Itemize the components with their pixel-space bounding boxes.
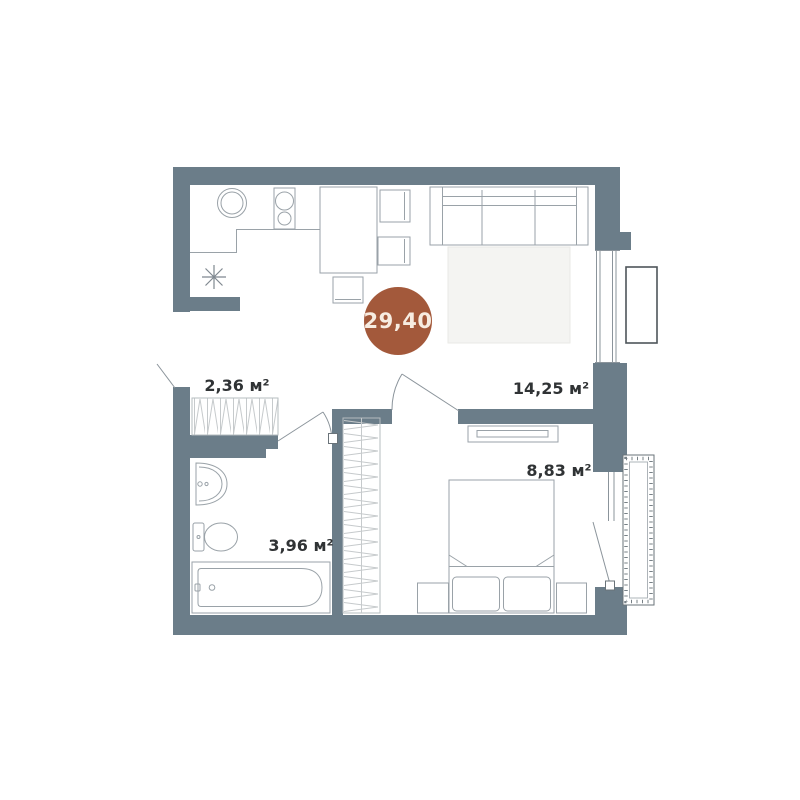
bedroom [343, 418, 587, 613]
bedroom-door-leaf [402, 374, 459, 411]
wall-bottom [173, 615, 627, 635]
sofa-outline [430, 187, 588, 245]
kitchen-sink-icon [218, 189, 247, 218]
balcony [623, 455, 654, 605]
rug [448, 247, 570, 343]
balcony-inner-rail [630, 462, 648, 598]
bathroom-door-pivot [329, 434, 338, 444]
wall-living-bedroom-b [458, 409, 595, 424]
wall-left-lower [173, 387, 190, 635]
wall-top [173, 167, 620, 185]
pillow-left [453, 577, 500, 611]
balcony-door-pivot [606, 581, 615, 590]
wall-bath-hall-b [190, 449, 266, 458]
chair-right-1 [380, 190, 410, 222]
balcony-door-leaf [593, 522, 610, 584]
tv-console [468, 426, 558, 442]
wall-left-upper [173, 167, 190, 312]
wall-right-top [595, 167, 620, 250]
hallway-area-label: 2,36 м² [204, 376, 269, 395]
wall-bath-hall-a [190, 435, 278, 449]
floor-plan-canvas: 2,36 м² 14,25 м² 3,96 м² 8,83 м² 29,40 [0, 0, 800, 800]
kitchen-living-area-label: 14,25 м² [513, 379, 589, 398]
stove-icon [274, 188, 295, 229]
wall-right-top-notch [620, 232, 631, 250]
fridge-star-icon [202, 265, 226, 289]
total-area-badge: 29,40 [364, 287, 433, 355]
hallway-wardrobe-hatch [192, 398, 278, 435]
wall-right-mid-pier [593, 363, 627, 472]
bathroom-door-leaf [278, 412, 323, 441]
nightstand-left [418, 583, 449, 613]
dining-table [320, 187, 377, 273]
entrance-door-leaf [157, 364, 175, 388]
sofa [430, 187, 588, 245]
french-balcony [626, 267, 657, 343]
bedroom-door-swing [392, 374, 402, 410]
living-room-window [595, 250, 620, 363]
bathroom-area-label: 3,96 м² [268, 536, 333, 555]
kitchen-counter [190, 230, 320, 253]
chair-right-2 [378, 237, 410, 265]
total-area-badge-label: 29,40 [364, 309, 433, 333]
bedroom-area-label: 8,83 м² [526, 461, 591, 480]
window-glass-lines [597, 250, 617, 363]
pillow-right [504, 577, 551, 611]
toilet-tank [193, 523, 204, 551]
balcony-door [593, 472, 615, 590]
balcony-door-fixed-glazing [609, 472, 615, 521]
nightstand-right [557, 583, 587, 613]
toilet-bowl [205, 523, 238, 551]
wall-kitchen-stub [190, 297, 240, 311]
floor-plan: 2,36 м² 14,25 м² 3,96 м² 8,83 м² 29,40 [0, 0, 800, 800]
wall-bottom-right-pier [595, 587, 627, 635]
kitchen [190, 187, 410, 303]
